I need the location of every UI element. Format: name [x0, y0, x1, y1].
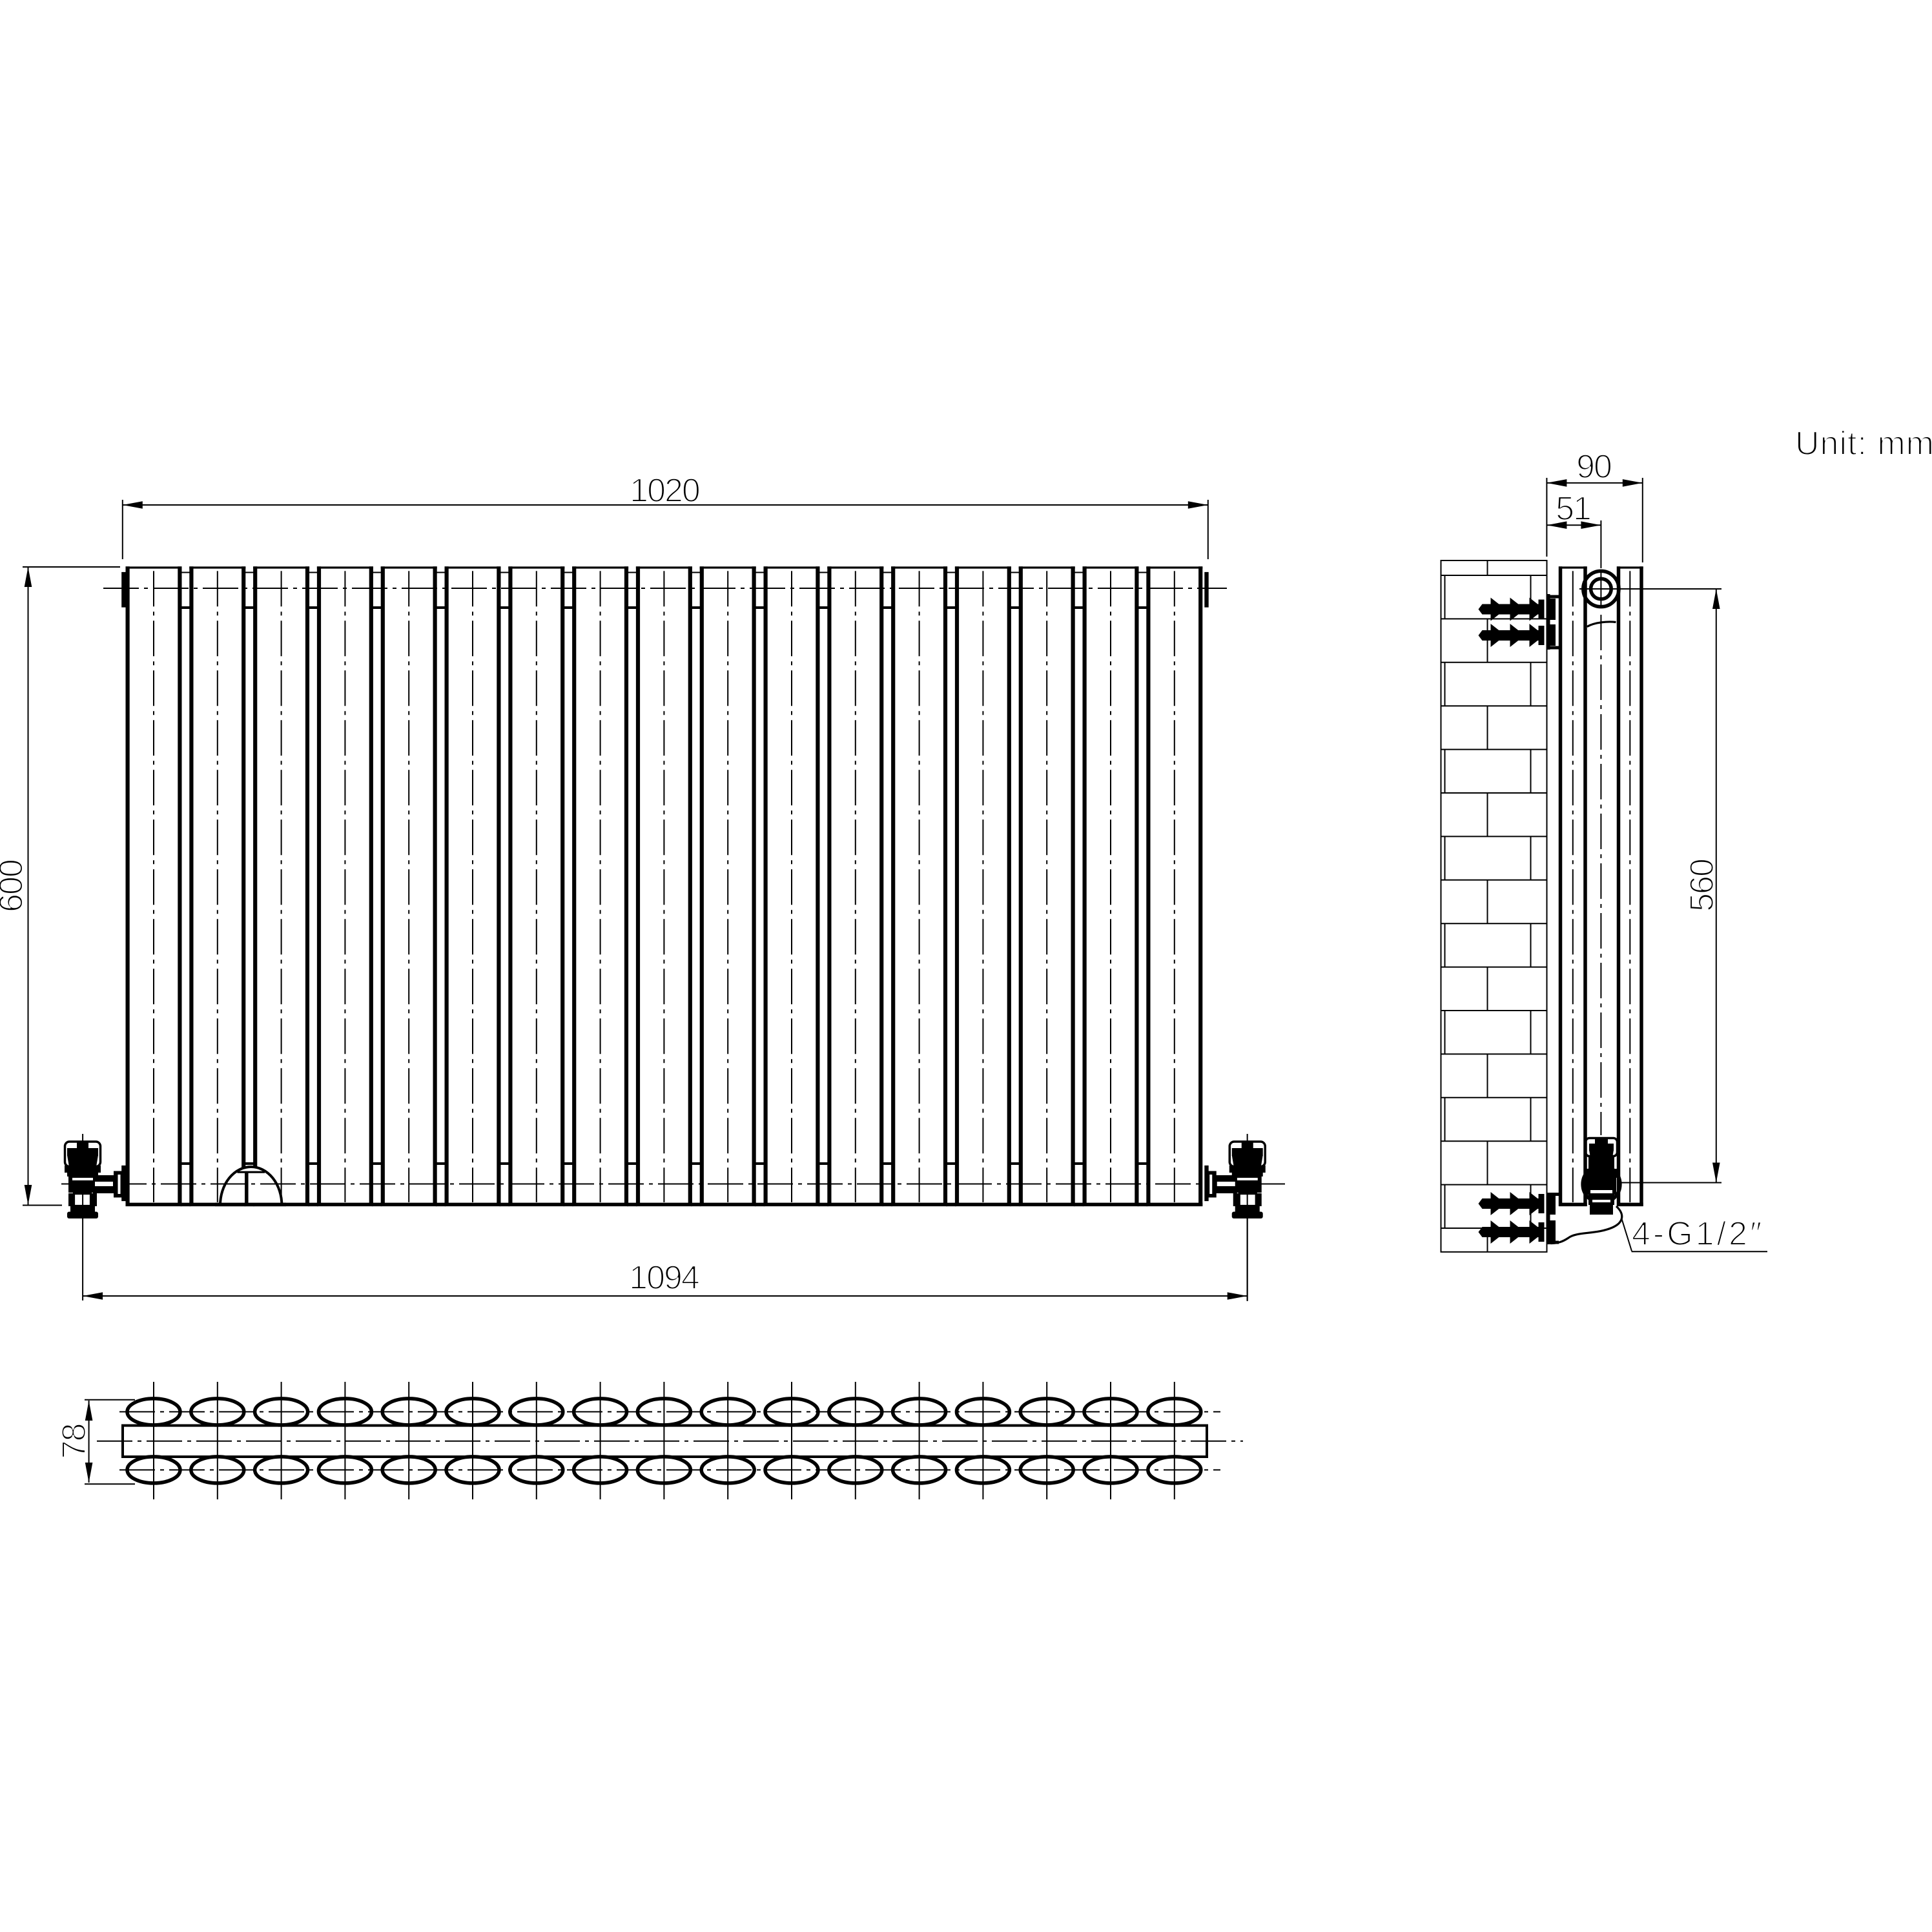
svg-text:90: 90	[1576, 448, 1611, 486]
svg-text:4-G1/2″: 4-G1/2″	[1632, 1215, 1764, 1253]
svg-text:51: 51	[1556, 490, 1590, 528]
svg-text:1020: 1020	[630, 472, 699, 509]
svg-text:600: 600	[0, 860, 30, 912]
svg-text:1094: 1094	[629, 1259, 699, 1297]
svg-text:560: 560	[1683, 859, 1721, 912]
svg-text:Unit: mm: Unit: mm	[1795, 425, 1932, 462]
svg-text:78: 78	[56, 1424, 93, 1459]
